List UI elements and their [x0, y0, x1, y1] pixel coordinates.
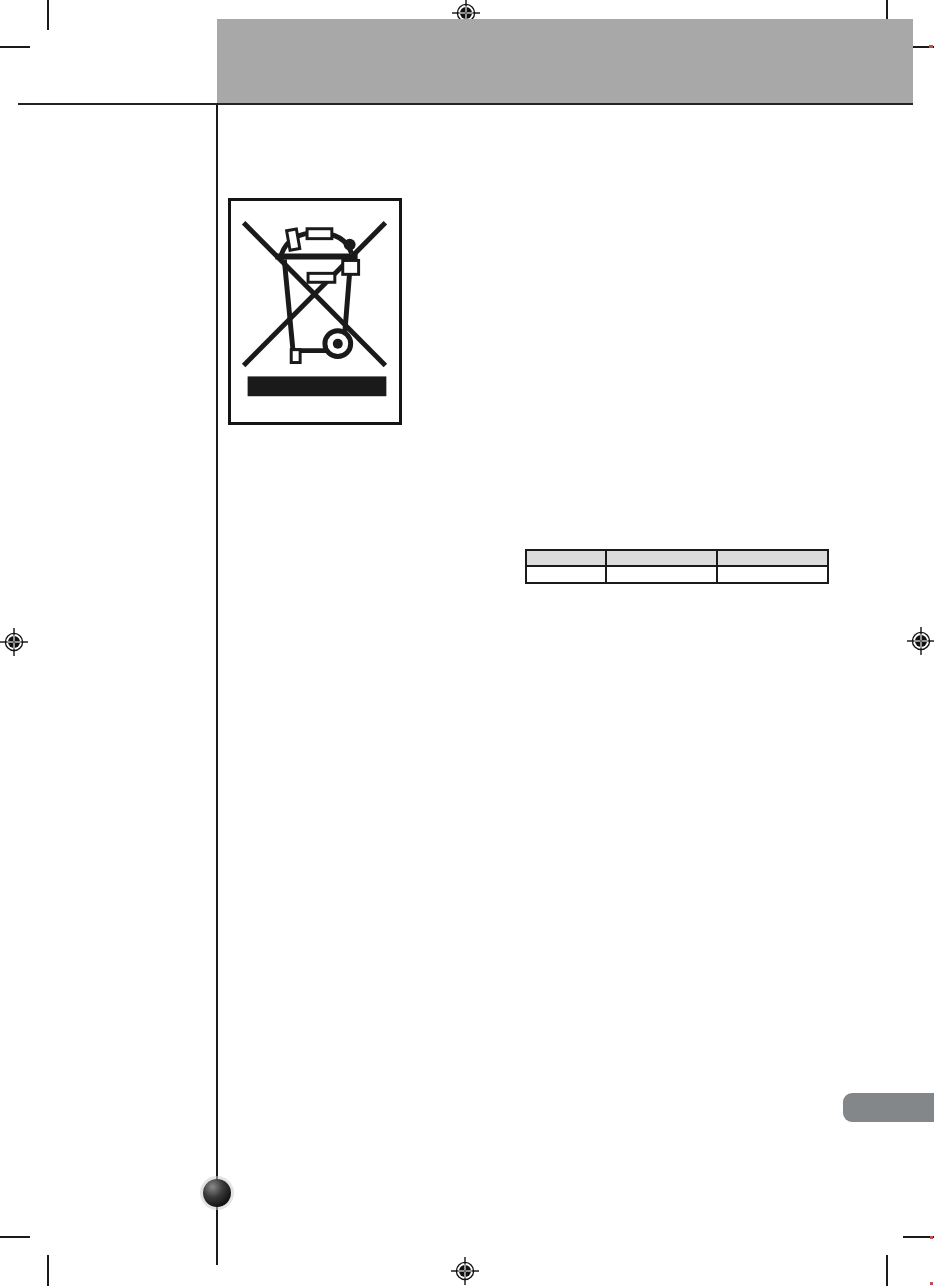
- header-banner: [217, 19, 913, 105]
- page-edge-section-tab: [843, 1093, 934, 1122]
- header-left-rule: [18, 103, 217, 105]
- red-proof-dot-bottom-right-2: [930, 1282, 933, 1285]
- weee-symbol-box: [228, 198, 402, 425]
- crop-mark-bottom-right-vertical: [886, 1255, 888, 1286]
- spec-table-body-row: [526, 566, 828, 583]
- spec-table-header-cell-1: [526, 550, 606, 566]
- spec-table-header-cell-2: [606, 550, 717, 566]
- margin-vertical-rule: [216, 105, 218, 1265]
- red-proof-dot-top-right: [929, 45, 933, 48]
- spec-table-body-cell-3: [717, 566, 828, 583]
- sphere-bullet-icon: [203, 1179, 231, 1207]
- spec-table: [525, 549, 829, 584]
- spec-table-header-cell-3: [717, 550, 828, 566]
- registration-mark-right-icon: [906, 626, 934, 656]
- spec-table-body-cell-1: [526, 566, 606, 583]
- spec-table-header-row: [526, 550, 828, 566]
- crop-mark-top-left-horizontal: [0, 46, 30, 48]
- document-page: [0, 0, 934, 1286]
- crop-mark-top-left-vertical: [47, 0, 49, 30]
- crop-mark-bottom-left-vertical: [47, 1255, 49, 1286]
- spec-table-body-cell-2: [606, 566, 717, 583]
- registration-mark-bottom-center-icon: [450, 1256, 480, 1286]
- crossed-out-wheeled-bin-icon: [231, 201, 399, 422]
- registration-mark-left-icon: [0, 627, 29, 657]
- crop-mark-bottom-left-horizontal: [0, 1236, 30, 1238]
- crop-mark-top-right-vertical: [886, 0, 888, 20]
- red-proof-dot-bottom-right-1: [930, 1236, 933, 1239]
